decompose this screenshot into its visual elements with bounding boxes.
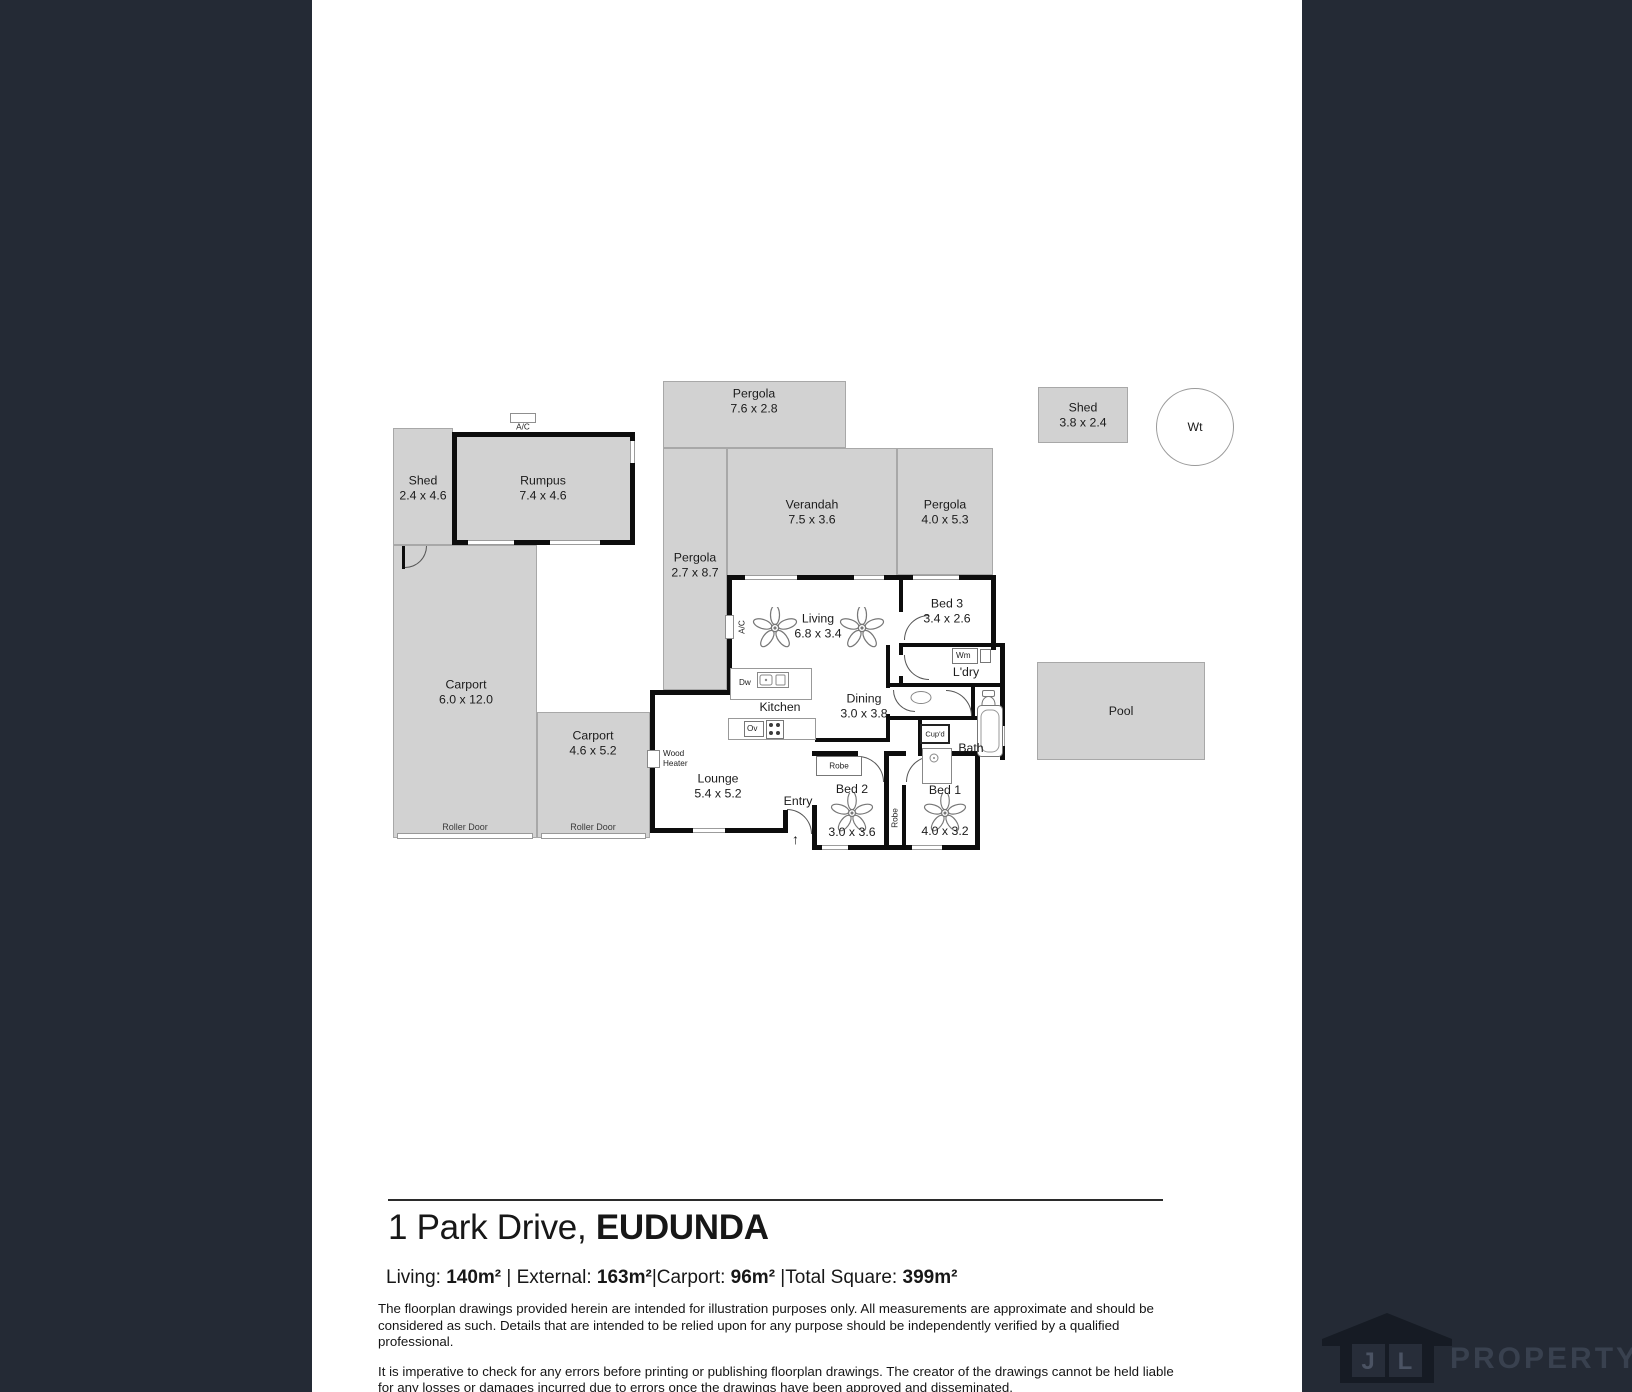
burner-dot bbox=[769, 731, 773, 735]
robe-label: Robe bbox=[829, 762, 849, 771]
room-dims-bed2: 3.0 x 3.6 bbox=[828, 825, 875, 840]
shower-head-icon bbox=[928, 752, 940, 764]
sink-icon bbox=[757, 672, 789, 688]
ac-unit-icon bbox=[725, 615, 734, 639]
room-label-bed3: Bed 33.4 x 2.6 bbox=[923, 597, 970, 626]
logo-letter-j: J bbox=[1361, 1348, 1374, 1375]
window bbox=[550, 540, 600, 545]
roller-door-icon bbox=[541, 833, 646, 839]
room-label-shed-top: Shed3.8 x 2.4 bbox=[1059, 401, 1106, 430]
wall bbox=[899, 647, 903, 655]
address-suburb: EUDUNDA bbox=[596, 1208, 769, 1247]
room-label-carport-second: Carport4.6 x 5.2 bbox=[569, 729, 616, 758]
window bbox=[822, 845, 848, 850]
room-label-shed-left: Shed2.4 x 4.6 bbox=[399, 474, 446, 503]
wall bbox=[899, 575, 903, 612]
room-label-carport-main: Carport6.0 x 12.0 bbox=[439, 678, 493, 707]
wall bbox=[902, 785, 906, 850]
room-label-rumpus: Rumpus7.4 x 4.6 bbox=[519, 474, 566, 503]
wall bbox=[886, 683, 1004, 687]
ceiling-fan-icon bbox=[752, 607, 798, 649]
room-label-pool: Pool bbox=[1109, 704, 1134, 719]
roller-door-label: Roller Door bbox=[570, 822, 616, 832]
window bbox=[468, 540, 514, 545]
roller-door-icon bbox=[397, 833, 533, 839]
wall bbox=[815, 738, 890, 742]
basin-icon bbox=[908, 690, 934, 705]
roller-door-label: Roller Door bbox=[442, 822, 488, 832]
room-label-living: Living6.8 x 3.4 bbox=[794, 612, 841, 641]
room-label-water-tank: Wt bbox=[1187, 420, 1202, 435]
room-label-ldry: L'dry bbox=[953, 665, 979, 680]
ac-unit-icon bbox=[510, 413, 536, 423]
window bbox=[912, 845, 942, 850]
ac-label: A/C bbox=[738, 620, 747, 634]
room-label-entry: Entry bbox=[784, 794, 813, 809]
room-dims-bed1: 4.0 x 3.2 bbox=[921, 824, 968, 839]
area-summary: Living: 140m² | External: 163m²|Carport:… bbox=[386, 1267, 957, 1289]
wood-heater-label: Heater bbox=[663, 759, 688, 768]
room-label-kitchen: Kitchen bbox=[759, 700, 800, 715]
room-label-pergola-top: Pergola7.6 x 2.8 bbox=[730, 387, 777, 416]
disclaimer-text: The floorplan drawings provided herein a… bbox=[378, 1301, 1178, 1392]
robe-label: Robe bbox=[891, 808, 900, 828]
address-street: 1 Park Drive, bbox=[388, 1208, 596, 1247]
room-label-dining: Dining3.0 x 3.8 bbox=[840, 692, 887, 721]
room-label-pergola-right: Pergola4.0 x 5.3 bbox=[921, 498, 968, 527]
room-label-bath: Bath bbox=[958, 741, 983, 756]
window bbox=[854, 575, 884, 580]
wall bbox=[812, 805, 817, 850]
laundry-tub-icon bbox=[980, 649, 991, 663]
jl-property-logo-icon: J L bbox=[1322, 1313, 1452, 1383]
window bbox=[745, 575, 797, 580]
window bbox=[693, 828, 725, 833]
wall bbox=[886, 645, 890, 688]
wall bbox=[899, 676, 903, 686]
ac-label: A/C bbox=[516, 423, 530, 432]
property-address: 1 Park Drive, EUDUNDA bbox=[388, 1208, 769, 1248]
cupboard-label: Cup'd bbox=[925, 730, 944, 739]
logo-wordmark: PROPERTY bbox=[1450, 1342, 1632, 1376]
room-label-bed2: Bed 2 bbox=[836, 782, 868, 797]
wall bbox=[899, 643, 1005, 647]
ceiling-fan-icon bbox=[839, 607, 885, 649]
wall bbox=[650, 690, 732, 695]
room-label-pergola-mid: Pergola2.7 x 8.7 bbox=[671, 551, 718, 580]
burner-dot bbox=[776, 731, 780, 735]
wood-heater-label: Wood bbox=[663, 749, 684, 758]
room-label-verandah: Verandah7.5 x 3.6 bbox=[786, 498, 839, 527]
divider-line bbox=[388, 1199, 1163, 1201]
window bbox=[913, 575, 959, 580]
left-dark-band bbox=[0, 0, 312, 1392]
room-label-bed1: Bed 1 bbox=[929, 783, 961, 798]
oven-label: Ov bbox=[747, 724, 757, 733]
disclaimer-paragraph-1: The floorplan drawings provided herein a… bbox=[378, 1301, 1178, 1351]
wall bbox=[884, 756, 889, 850]
room-label-lounge: Lounge5.4 x 5.2 bbox=[694, 772, 741, 801]
logo-letter-l: L bbox=[1398, 1348, 1413, 1375]
disclaimer-paragraph-2: It is imperative to check for any errors… bbox=[378, 1364, 1178, 1392]
floorplan-page: A/C ↑ A/C Dw bbox=[0, 0, 1632, 1392]
wall bbox=[991, 575, 996, 650]
washing-machine-label: Wm bbox=[956, 651, 971, 660]
entry-arrow-icon: ↑ bbox=[792, 831, 799, 847]
wall bbox=[975, 751, 980, 850]
window bbox=[630, 441, 635, 463]
right-dark-band bbox=[1302, 0, 1632, 1392]
burner-dot bbox=[769, 723, 773, 727]
dishwasher-label: Dw bbox=[739, 678, 751, 687]
burner-dot bbox=[776, 723, 780, 727]
wood-heater-icon bbox=[647, 750, 660, 768]
